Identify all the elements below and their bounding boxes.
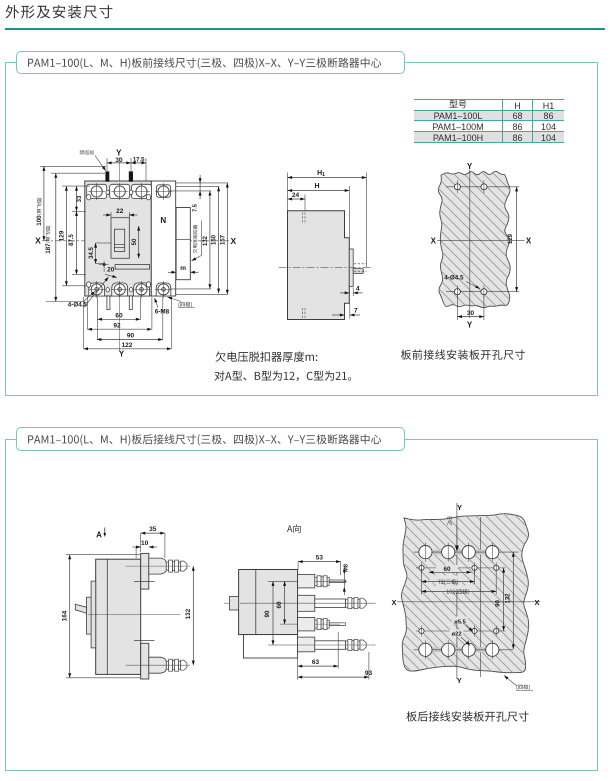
svg-text:M8: M8	[344, 563, 350, 572]
svg-text:ø5.5: ø5.5	[454, 619, 466, 625]
svg-text:63: 63	[312, 659, 320, 666]
svg-text:60: 60	[443, 566, 451, 573]
svg-text:4-Ø4.5: 4-Ø4.5	[444, 275, 464, 282]
svg-text:Y: Y	[119, 350, 125, 359]
svg-text:129: 129	[508, 233, 514, 244]
svg-text:A: A	[96, 531, 102, 540]
svg-text:164: 164	[61, 610, 68, 621]
svg-text:24: 24	[292, 192, 300, 199]
svg-text:50: 50	[132, 238, 138, 245]
svg-text:22: 22	[116, 208, 124, 215]
svg-text:17.5: 17.5	[133, 157, 145, 163]
svg-text:X: X	[35, 235, 41, 245]
svg-text:34.5: 34.5	[89, 247, 95, 259]
svg-text:X: X	[230, 236, 236, 246]
svg-text:60: 60	[115, 312, 123, 319]
svg-text:90: 90	[496, 600, 502, 607]
svg-text:X: X	[391, 598, 396, 607]
svg-text:60: 60	[276, 601, 283, 609]
svg-text:H: H	[314, 183, 319, 190]
svg-text:4-Ø4.5: 4-Ø4.5	[68, 301, 88, 308]
svg-text:4: 4	[356, 286, 360, 293]
svg-text:35: 35	[149, 526, 157, 533]
svg-text:53: 53	[316, 555, 324, 562]
svg-text:ø22: ø22	[452, 632, 462, 638]
svg-text:93: 93	[365, 670, 373, 677]
svg-text:132: 132	[203, 235, 209, 246]
svg-text:Y: Y	[116, 148, 122, 157]
svg-text:Y: Y	[467, 162, 473, 171]
svg-text:10: 10	[141, 540, 149, 547]
svg-text:N: N	[160, 216, 166, 225]
svg-text:6-M8: 6-M8	[155, 308, 170, 315]
svg-text:92: 92	[113, 322, 121, 329]
svg-text:129: 129	[58, 230, 65, 241]
svg-text:157: 157	[220, 234, 226, 245]
svg-text:X: X	[526, 236, 532, 245]
svg-text:122: 122	[122, 342, 133, 349]
svg-text:100: 100	[36, 215, 43, 226]
svg-text:X: X	[534, 598, 539, 607]
svg-text:X: X	[431, 236, 437, 245]
svg-text:132: 132	[506, 593, 512, 604]
svg-text:90: 90	[127, 333, 135, 340]
svg-text:Y: Y	[467, 321, 473, 330]
svg-text:150: 150	[212, 234, 218, 245]
svg-text:33: 33	[77, 195, 83, 202]
svg-text:m: m	[180, 265, 186, 272]
svg-text:Y: Y	[457, 676, 462, 685]
svg-text:87.5: 87.5	[69, 234, 75, 246]
svg-text:Y: Y	[457, 503, 462, 512]
svg-text:30: 30	[467, 310, 475, 317]
svg-text:132: 132	[185, 608, 192, 619]
svg-text:7: 7	[354, 307, 358, 314]
svg-text:H1: H1	[317, 170, 325, 178]
svg-text:90: 90	[264, 610, 271, 618]
svg-text:20: 20	[107, 266, 115, 273]
svg-text:30: 30	[115, 157, 123, 164]
svg-text:7.5: 7.5	[192, 203, 198, 212]
svg-text:187: 187	[45, 243, 52, 254]
